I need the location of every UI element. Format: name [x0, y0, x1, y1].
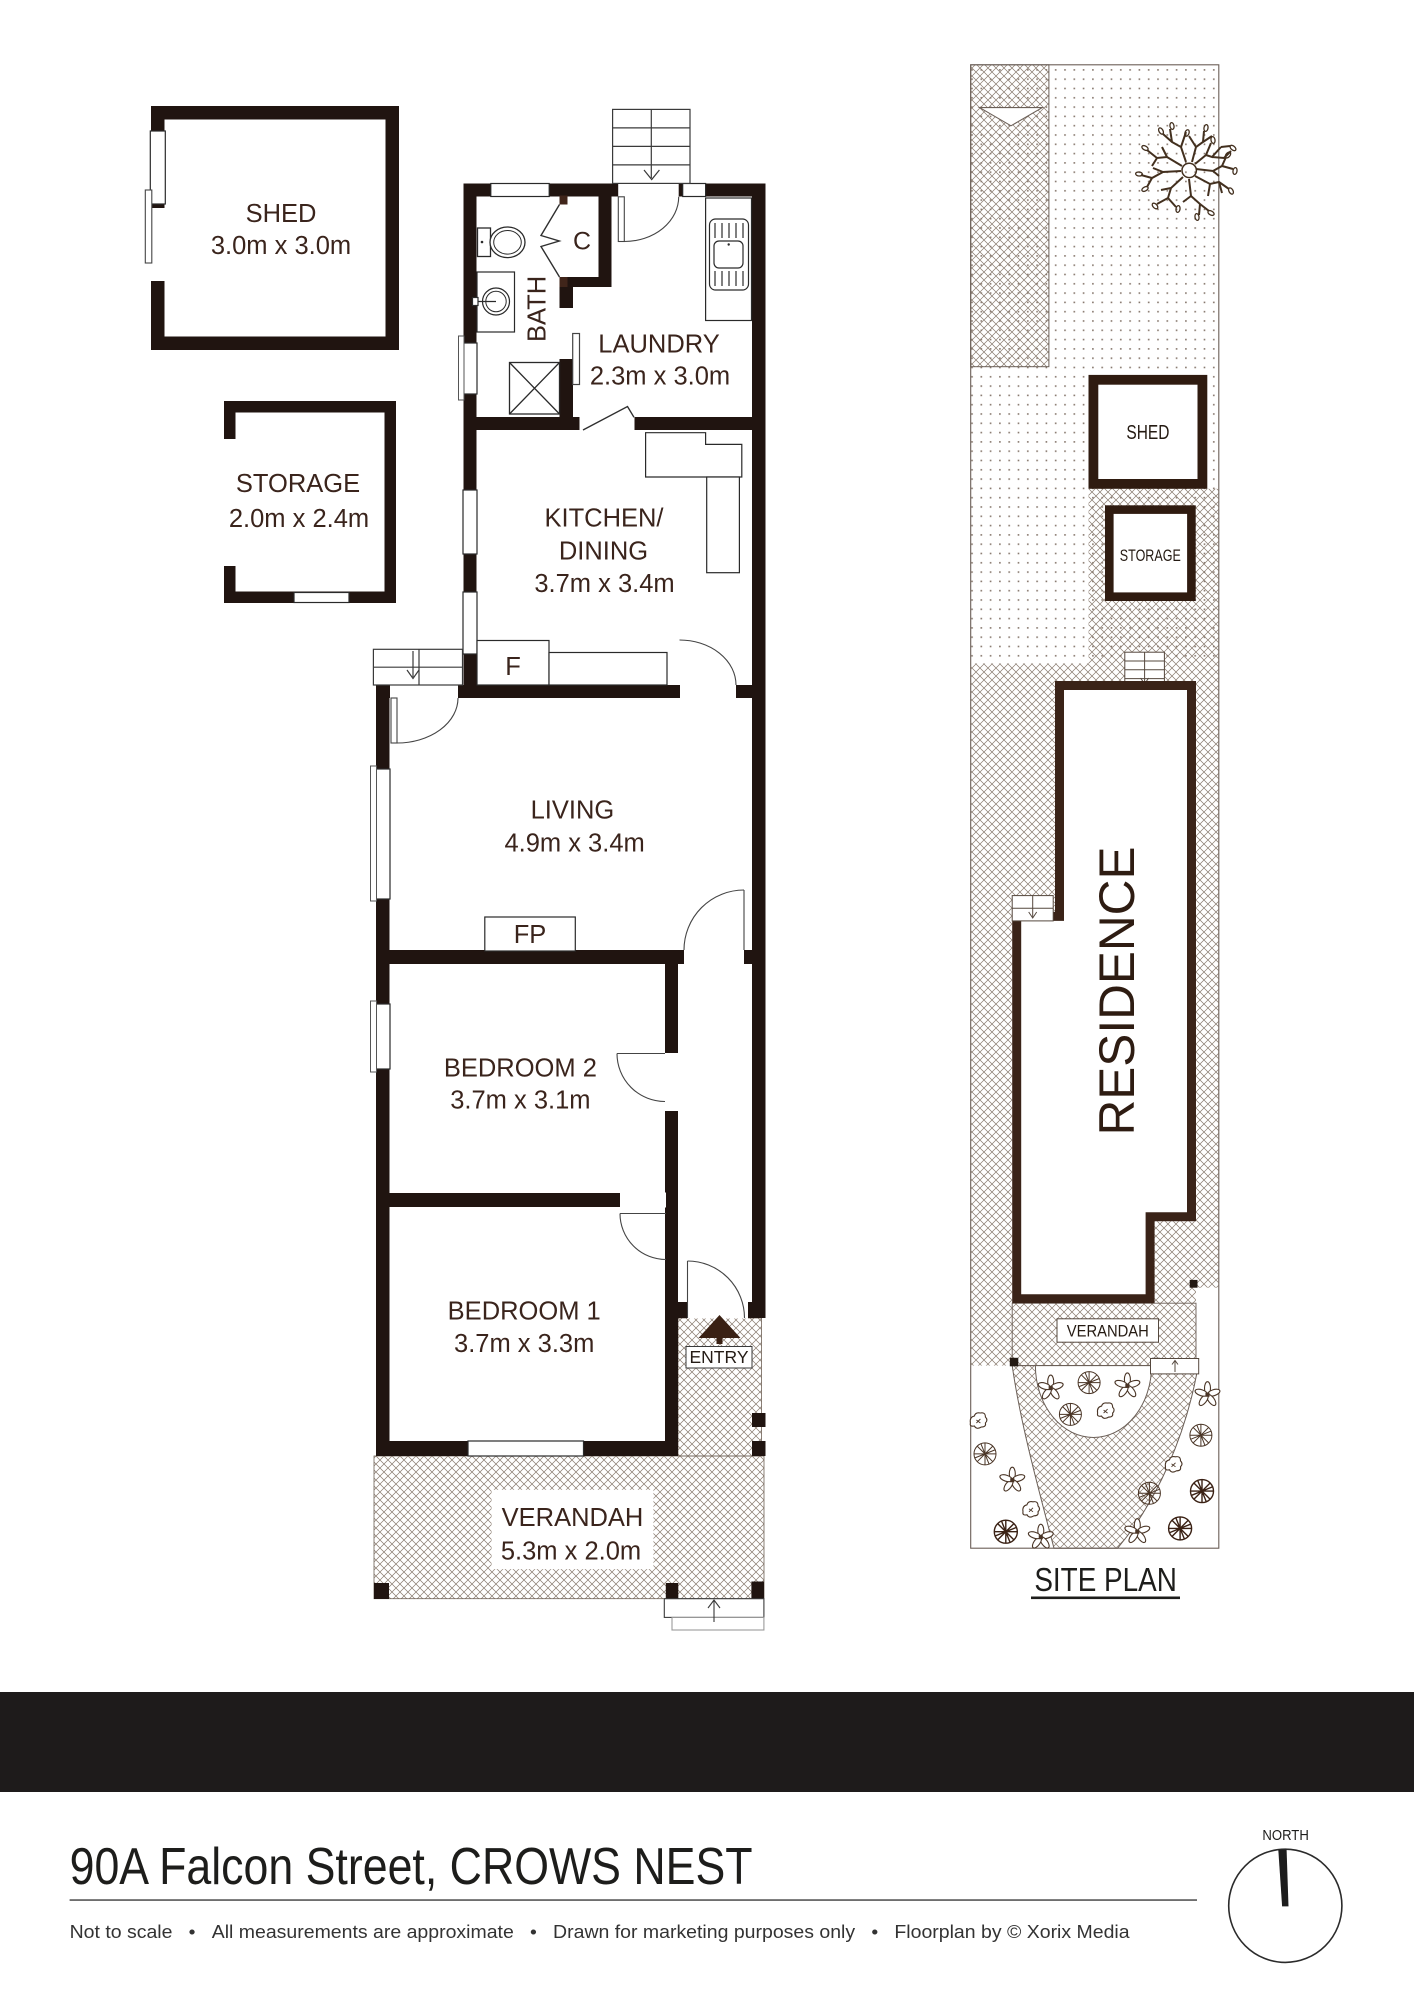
- svg-text:KITCHEN/: KITCHEN/: [544, 505, 664, 533]
- svg-text:3.7m x 3.4m: 3.7m x 3.4m: [534, 570, 674, 598]
- svg-text:VERANDAH: VERANDAH: [502, 1504, 644, 1532]
- svg-text:F: F: [505, 653, 521, 681]
- svg-text:90A Falcon Street, CROWS NEST: 90A Falcon Street, CROWS NEST: [70, 1838, 753, 1896]
- svg-text:LIVING: LIVING: [531, 797, 615, 825]
- svg-text:Not to scale • All measure: Not to scale • All measurements are appr…: [70, 1921, 1131, 1942]
- svg-text:STORAGE: STORAGE: [236, 470, 360, 498]
- svg-text:STORAGE: STORAGE: [1120, 546, 1181, 565]
- svg-text:DINING: DINING: [559, 538, 648, 566]
- svg-text:SITE PLAN: SITE PLAN: [1034, 1561, 1177, 1598]
- svg-text:VERANDAH: VERANDAH: [1067, 1322, 1149, 1341]
- svg-text:BATH: BATH: [524, 276, 552, 342]
- svg-text:ENTRY: ENTRY: [690, 1347, 749, 1367]
- svg-text:SHED: SHED: [1126, 422, 1169, 444]
- svg-text:FP: FP: [514, 921, 547, 949]
- svg-text:RESIDENCE: RESIDENCE: [1089, 847, 1145, 1136]
- svg-text:BEDROOM 2: BEDROOM 2: [444, 1055, 597, 1083]
- svg-text:3.0m x 3.0m: 3.0m x 3.0m: [211, 232, 351, 260]
- svg-text:BEDROOM 1: BEDROOM 1: [448, 1298, 601, 1326]
- svg-text:LAUNDRY: LAUNDRY: [598, 331, 719, 359]
- svg-text:3.7m x 3.1m: 3.7m x 3.1m: [450, 1087, 590, 1115]
- svg-text:NORTH: NORTH: [1262, 1827, 1308, 1844]
- svg-text:C: C: [573, 227, 591, 255]
- svg-text:4.9m x 3.4m: 4.9m x 3.4m: [504, 830, 644, 858]
- svg-text:2.0m x 2.4m: 2.0m x 2.4m: [229, 505, 369, 533]
- svg-text:5.3m x 2.0m: 5.3m x 2.0m: [501, 1538, 641, 1566]
- svg-text:2.3m x 3.0m: 2.3m x 3.0m: [590, 363, 730, 391]
- svg-text:SHED: SHED: [246, 200, 317, 228]
- svg-text:3.7m x 3.3m: 3.7m x 3.3m: [454, 1330, 594, 1358]
